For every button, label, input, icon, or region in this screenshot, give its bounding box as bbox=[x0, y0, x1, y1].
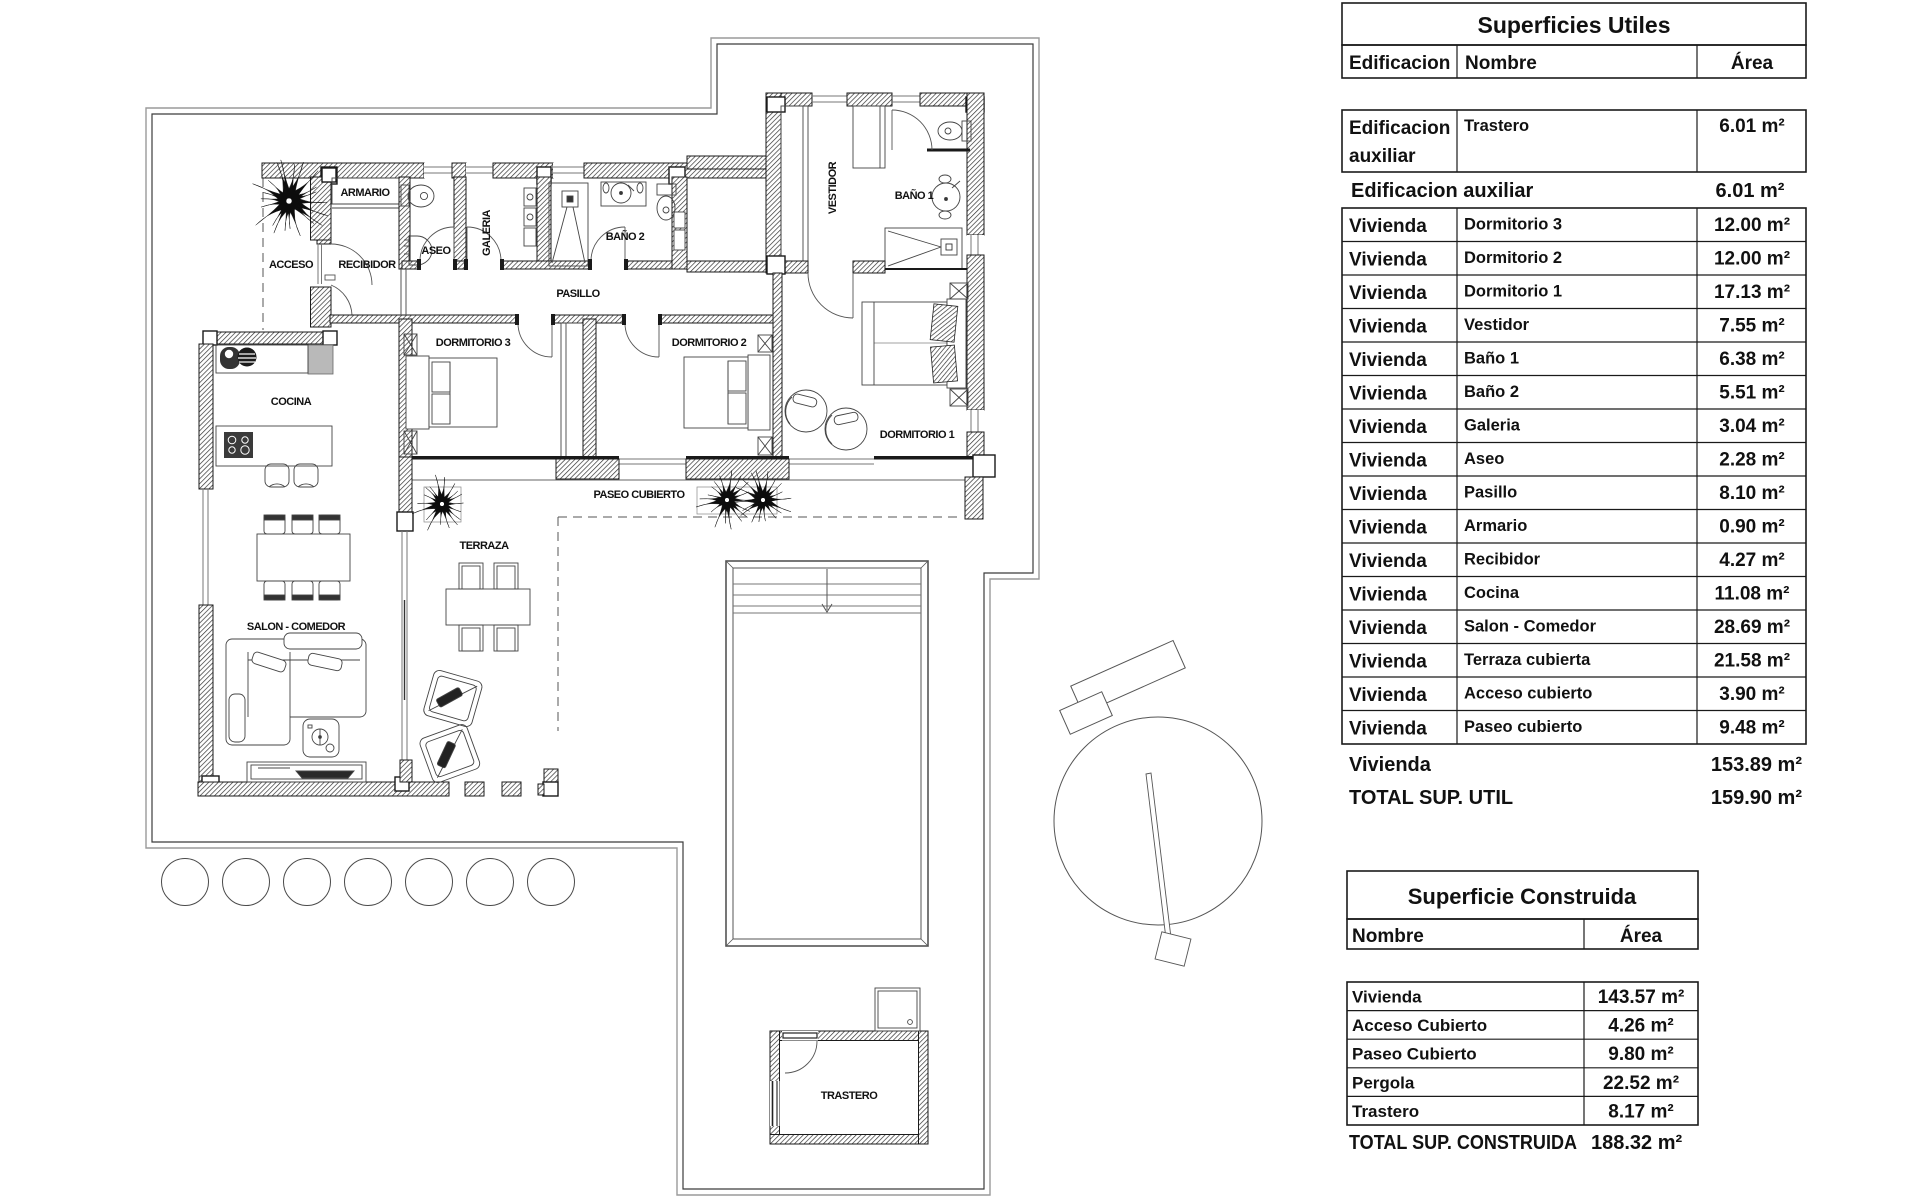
svg-text:Paseo Cubierto: Paseo Cubierto bbox=[1352, 1045, 1477, 1064]
svg-text:Edificacion auxiliar: Edificacion auxiliar bbox=[1351, 180, 1534, 202]
svg-text:SALON - COMEDOR: SALON - COMEDOR bbox=[247, 621, 346, 633]
svg-text:Dormitorio 2: Dormitorio 2 bbox=[1464, 249, 1562, 267]
svg-text:Superficies Utiles: Superficies Utiles bbox=[1477, 12, 1670, 38]
svg-text:Acceso cubierto: Acceso cubierto bbox=[1464, 685, 1592, 703]
svg-text:Edificacion: Edificacion bbox=[1349, 53, 1450, 74]
svg-text:Vivienda: Vivienda bbox=[1349, 216, 1427, 237]
svg-text:Baño 2: Baño 2 bbox=[1464, 383, 1519, 401]
svg-text:7.55 m²: 7.55 m² bbox=[1719, 316, 1784, 337]
svg-text:6.01 m²: 6.01 m² bbox=[1716, 180, 1785, 202]
svg-text:12.00 m²: 12.00 m² bbox=[1714, 249, 1790, 270]
svg-text:Nombre: Nombre bbox=[1465, 53, 1537, 74]
svg-text:Vivienda: Vivienda bbox=[1349, 754, 1432, 776]
svg-text:Nombre: Nombre bbox=[1352, 926, 1424, 947]
svg-text:BAÑO 2: BAÑO 2 bbox=[606, 230, 645, 243]
svg-text:Pasillo: Pasillo bbox=[1464, 484, 1517, 502]
svg-text:ASEO: ASEO bbox=[421, 245, 451, 257]
svg-text:153.89 m²: 153.89 m² bbox=[1711, 754, 1803, 776]
svg-text:12.00 m²: 12.00 m² bbox=[1714, 215, 1790, 236]
svg-text:22.52 m²: 22.52 m² bbox=[1603, 1073, 1679, 1094]
svg-text:Vivienda: Vivienda bbox=[1349, 719, 1427, 740]
svg-text:Pergola: Pergola bbox=[1352, 1073, 1415, 1092]
svg-text:9.80 m²: 9.80 m² bbox=[1608, 1044, 1673, 1065]
svg-text:143.57 m²: 143.57 m² bbox=[1598, 987, 1685, 1008]
svg-text:Trastero: Trastero bbox=[1464, 117, 1529, 135]
svg-text:3.04 m²: 3.04 m² bbox=[1719, 416, 1784, 437]
svg-text:Vivienda: Vivienda bbox=[1349, 317, 1427, 338]
svg-text:Aseo: Aseo bbox=[1464, 450, 1504, 468]
svg-text:Vivienda: Vivienda bbox=[1349, 250, 1427, 271]
svg-text:DORMITORIO 2: DORMITORIO 2 bbox=[672, 337, 747, 349]
svg-text:Vivienda: Vivienda bbox=[1352, 988, 1422, 1007]
svg-text:28.69 m²: 28.69 m² bbox=[1714, 617, 1790, 638]
svg-text:Trastero: Trastero bbox=[1352, 1102, 1419, 1121]
svg-text:Salon - Comedor: Salon - Comedor bbox=[1464, 618, 1597, 636]
svg-text:8.17 m²: 8.17 m² bbox=[1608, 1101, 1673, 1122]
svg-text:BAÑO 1: BAÑO 1 bbox=[895, 189, 934, 202]
svg-text:Vivienda: Vivienda bbox=[1349, 618, 1427, 639]
svg-text:RECIBIDOR: RECIBIDOR bbox=[338, 259, 396, 271]
svg-text:Vivienda: Vivienda bbox=[1349, 417, 1427, 438]
svg-text:9.48 m²: 9.48 m² bbox=[1719, 718, 1784, 739]
svg-text:6.38 m²: 6.38 m² bbox=[1719, 349, 1784, 370]
svg-text:ACCESO: ACCESO bbox=[269, 259, 314, 271]
svg-text:ARMARIO: ARMARIO bbox=[340, 187, 390, 199]
svg-text:auxiliar: auxiliar bbox=[1349, 146, 1416, 167]
svg-text:DORMITORIO 1: DORMITORIO 1 bbox=[880, 429, 955, 441]
svg-text:Armario: Armario bbox=[1464, 517, 1527, 535]
svg-text:Vivienda: Vivienda bbox=[1349, 283, 1427, 304]
svg-text:Dormitorio 3: Dormitorio 3 bbox=[1464, 216, 1562, 234]
svg-text:Vivienda: Vivienda bbox=[1349, 484, 1427, 505]
svg-text:21.58 m²: 21.58 m² bbox=[1714, 651, 1790, 672]
svg-text:Vivienda: Vivienda bbox=[1349, 451, 1427, 472]
svg-text:6.01 m²: 6.01 m² bbox=[1719, 116, 1784, 137]
svg-text:Superficie Construida: Superficie Construida bbox=[1408, 884, 1637, 909]
svg-text:Paseo cubierto: Paseo cubierto bbox=[1464, 718, 1582, 736]
svg-text:11.08 m²: 11.08 m² bbox=[1715, 584, 1790, 605]
svg-text:TOTAL SUP. CONSTRUIDA: TOTAL SUP. CONSTRUIDA bbox=[1349, 1132, 1577, 1154]
svg-text:188.32 m²: 188.32 m² bbox=[1591, 1132, 1683, 1154]
svg-text:Vivienda: Vivienda bbox=[1349, 652, 1427, 673]
svg-text:TRASTERO: TRASTERO bbox=[821, 1090, 878, 1102]
svg-text:4.27 m²: 4.27 m² bbox=[1719, 550, 1784, 571]
svg-text:Recibidor: Recibidor bbox=[1464, 551, 1541, 569]
svg-text:COCINA: COCINA bbox=[271, 396, 312, 408]
svg-text:TERRAZA: TERRAZA bbox=[459, 540, 509, 552]
svg-text:VESTIDOR: VESTIDOR bbox=[827, 161, 839, 214]
svg-text:PASILLO: PASILLO bbox=[556, 288, 600, 300]
svg-text:Área: Área bbox=[1620, 925, 1663, 947]
svg-text:Área: Área bbox=[1731, 52, 1774, 74]
svg-text:DORMITORIO 3: DORMITORIO 3 bbox=[436, 337, 511, 349]
svg-text:Vivienda: Vivienda bbox=[1349, 551, 1427, 572]
svg-text:Edificacion: Edificacion bbox=[1349, 118, 1450, 139]
svg-text:PASEO CUBIERTO: PASEO CUBIERTO bbox=[594, 489, 686, 501]
svg-text:159.90 m²: 159.90 m² bbox=[1711, 787, 1803, 809]
svg-text:5.51 m²: 5.51 m² bbox=[1719, 383, 1784, 404]
svg-text:Cocina: Cocina bbox=[1464, 584, 1520, 602]
svg-text:Galeria: Galeria bbox=[1464, 417, 1521, 435]
svg-text:Dormitorio 1: Dormitorio 1 bbox=[1464, 283, 1562, 301]
svg-text:3.90 m²: 3.90 m² bbox=[1719, 684, 1784, 705]
svg-text:4.26 m²: 4.26 m² bbox=[1608, 1016, 1673, 1037]
svg-text:Baño 1: Baño 1 bbox=[1464, 350, 1519, 368]
svg-text:Vivienda: Vivienda bbox=[1349, 585, 1427, 606]
svg-text:17.13 m²: 17.13 m² bbox=[1714, 282, 1790, 303]
svg-text:8.10 m²: 8.10 m² bbox=[1719, 483, 1784, 504]
svg-text:Vivienda: Vivienda bbox=[1349, 518, 1427, 539]
svg-text:2.28 m²: 2.28 m² bbox=[1719, 450, 1784, 471]
svg-text:Vestidor: Vestidor bbox=[1464, 316, 1530, 334]
svg-text:Vivienda: Vivienda bbox=[1349, 384, 1427, 405]
svg-text:Vivienda: Vivienda bbox=[1349, 350, 1427, 371]
svg-text:0.90 m²: 0.90 m² bbox=[1719, 517, 1784, 538]
svg-text:Vivienda: Vivienda bbox=[1349, 685, 1427, 706]
svg-text:GALERIA: GALERIA bbox=[481, 209, 493, 256]
svg-text:TOTAL SUP. UTIL: TOTAL SUP. UTIL bbox=[1349, 787, 1513, 809]
svg-text:Terraza cubierta: Terraza cubierta bbox=[1464, 651, 1591, 669]
svg-text:Acceso Cubierto: Acceso Cubierto bbox=[1352, 1016, 1487, 1035]
